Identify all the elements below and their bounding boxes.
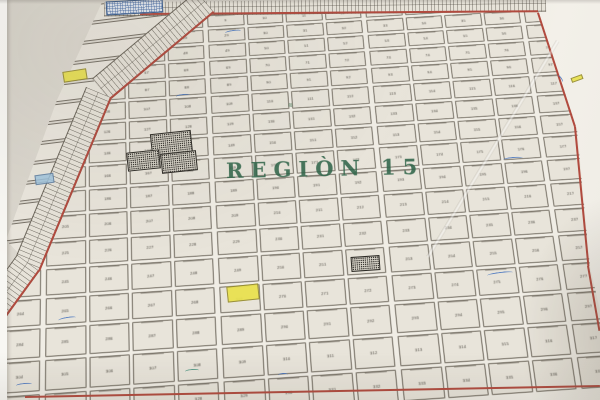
block-number: 206 [104, 221, 112, 226]
city-block: 267 [132, 290, 173, 320]
block-number: 58 [581, 26, 586, 30]
street-name-smudge [9, 330, 31, 332]
block-number: 130 [268, 119, 275, 124]
block-number: 87 [144, 88, 149, 93]
street-name-smudge [55, 269, 76, 271]
street-name-smudge [221, 136, 241, 138]
street-name-smudge [186, 350, 208, 352]
city-block: 134 [415, 101, 455, 121]
block-number: 104 [20, 114, 27, 119]
street-name-smudge [469, 142, 489, 144]
city-block: 91 [290, 71, 328, 89]
block-number: 228 [189, 242, 197, 247]
street-name-smudge [308, 199, 329, 201]
block-number: 88 [185, 85, 190, 90]
block-number: 248 [190, 270, 198, 275]
city-block: 71 [288, 54, 326, 71]
block-number: 109 [226, 101, 233, 106]
street-name-smudge [226, 230, 247, 232]
block-number: 113 [389, 91, 396, 96]
street-name-smudge [300, 91, 320, 93]
street-name-smudge [277, 377, 299, 379]
city-block: 166 [88, 164, 127, 187]
street-name-smudge [545, 95, 565, 97]
street-name-smudge [219, 77, 239, 79]
city-block: 124 [4, 127, 42, 148]
block-number: 84 [22, 96, 27, 101]
stippled-block-2 [126, 149, 161, 171]
street-name-smudge [232, 347, 254, 349]
block-number: 313 [415, 347, 423, 353]
city-block: 4 [7, 25, 44, 39]
street-name-smudge [15, 73, 35, 75]
street-name-smudge [98, 324, 119, 326]
block-number: 268 [191, 299, 199, 304]
block-number: 230 [275, 237, 283, 242]
green-stamp-symbol: ≋ [288, 102, 294, 109]
street-name-smudge [271, 283, 292, 285]
street-name-smudge [447, 301, 468, 303]
street-name-smudge [217, 44, 237, 46]
city-block: 34 [405, 15, 443, 30]
block-number: 286 [105, 336, 113, 342]
street-name-smudge [352, 222, 373, 224]
block-number: 235 [486, 223, 494, 228]
city-block: 230 [259, 226, 300, 253]
block-number: 304 [16, 374, 24, 380]
underlying-sheet-edge [0, 0, 7, 400]
block-number: 188 [187, 191, 195, 196]
block-number: 32 [342, 26, 347, 30]
block-number: 309 [239, 359, 247, 365]
street-name-smudge [416, 32, 435, 34]
street-name-smudge [478, 214, 499, 216]
city-block: 135 [455, 98, 495, 118]
city-block: 38 [562, 6, 600, 21]
street-name-smudge [345, 149, 365, 151]
street-name-smudge [314, 280, 335, 282]
block-number: 70 [265, 63, 270, 67]
block-number: 265 [62, 308, 70, 314]
block-number: 131 [308, 116, 316, 121]
block-number: 144 [20, 156, 27, 161]
street-name-smudge [15, 41, 35, 43]
city-block: 9 [207, 13, 244, 27]
street-name-smudge [187, 383, 209, 385]
street-name-smudge [582, 73, 600, 75]
street-name-smudge [98, 239, 119, 241]
block-number: 71 [305, 60, 310, 64]
block-number: 149 [228, 142, 235, 147]
street-name-smudge [137, 101, 157, 103]
city-block: 113 [373, 84, 412, 103]
street-name-smudge [573, 22, 592, 24]
street-name-smudge [401, 274, 422, 276]
street-name-smudge [496, 43, 516, 45]
block-number: 213 [400, 202, 408, 207]
street-name-smudge [225, 205, 246, 207]
block-number: 78 [584, 43, 589, 47]
block-number: 126 [103, 129, 110, 134]
city-block: 53 [368, 33, 406, 49]
city-block: 76 [487, 42, 526, 59]
street-name-smudge [14, 90, 34, 92]
block-number: 98 [587, 60, 592, 64]
city-block: 138 [577, 91, 600, 111]
block-number: 207 [146, 219, 154, 224]
street-name-smudge [466, 120, 486, 122]
street-name-smudge [571, 7, 590, 9]
street-name-smudge [576, 38, 596, 40]
street-name-smudge [454, 365, 476, 367]
block-number: 245 [62, 278, 70, 283]
block-number: 275 [493, 279, 501, 284]
block-number: 154 [433, 129, 441, 134]
city-block: 33 [366, 18, 404, 33]
block-number: 255 [490, 250, 498, 255]
city-block: 226 [89, 237, 129, 264]
stippled-block-4 [351, 255, 381, 272]
block-number: 310 [283, 356, 291, 362]
city-block: 32 [325, 20, 363, 35]
street-name-smudge [312, 252, 333, 254]
city-block: 24 [7, 40, 44, 55]
block-number: 157 [556, 122, 564, 127]
street-name-smudge [230, 316, 251, 318]
city-block: 130 [252, 111, 291, 131]
street-name-smudge [143, 386, 165, 389]
block-number: 264 [17, 311, 25, 317]
city-block: 228 [173, 232, 213, 259]
street-name-smudge [343, 128, 363, 130]
city-block: 56 [485, 26, 523, 42]
street-name-smudge [386, 125, 406, 127]
street-name-smudge [178, 118, 198, 120]
city-block: 210 [257, 200, 297, 225]
block-number: 250 [277, 264, 285, 269]
street-name-smudge [295, 24, 314, 26]
block-number: 112 [347, 94, 354, 99]
street-name-smudge [316, 310, 337, 312]
city-block: 333 [401, 366, 445, 400]
street-name-smudge [266, 202, 287, 204]
city-block: 108 [169, 97, 207, 116]
block-number: 138 [593, 98, 600, 103]
city-block: 146 [88, 142, 126, 164]
city-block: 158 [580, 111, 600, 132]
block-number: 194 [439, 175, 447, 180]
street-name-smudge [579, 55, 599, 57]
block-number: 133 [391, 111, 399, 116]
city-block: 215 [466, 187, 507, 212]
city-block: 35 [444, 13, 482, 28]
city-block: 307 [133, 351, 175, 384]
block-number: 208 [188, 216, 196, 221]
block-number: 116 [508, 84, 515, 89]
city-block: 314 [441, 331, 485, 364]
street-name-smudge [216, 15, 235, 17]
block-number: 293 [412, 315, 420, 321]
street-name-smudge [137, 82, 157, 84]
block-number: 209 [232, 213, 240, 218]
block-number: 191 [313, 183, 321, 188]
block-number: 295 [497, 309, 505, 315]
street-name-smudge [440, 243, 461, 245]
street-name-smudge [259, 75, 279, 77]
street-name-smudge [378, 50, 398, 52]
block-number: 229 [233, 239, 241, 244]
city-block: 206 [88, 211, 127, 237]
city-block: 87 [128, 81, 166, 99]
city-block: 74 [409, 46, 447, 63]
street-name-smudge [297, 55, 317, 57]
city-block: 245 [46, 267, 86, 295]
block-number: 75 [465, 50, 470, 54]
city-block: 150 [253, 132, 292, 154]
city-block: 92 [329, 69, 367, 87]
street-name-smudge [98, 213, 119, 215]
block-number: 210 [273, 210, 281, 215]
block-number: 107 [144, 107, 151, 112]
block-number: 270 [279, 293, 287, 298]
block-number: 91 [306, 78, 311, 83]
street-name-smudge [556, 159, 576, 161]
block-number: 274 [451, 282, 459, 287]
city-block: 233 [386, 218, 427, 245]
street-name-smudge [262, 133, 282, 135]
block-number: 34 [422, 21, 427, 25]
city-block: 68 [168, 61, 206, 78]
city-block: 289 [221, 314, 263, 345]
block-number: 291 [324, 321, 332, 327]
street-name-smudge [426, 123, 446, 125]
street-name-smudge [57, 54, 77, 56]
street-name-smudge [13, 171, 33, 173]
street-name-smudge [382, 85, 402, 87]
city-block: 231 [301, 223, 342, 250]
block-number: 93 [388, 73, 393, 78]
block-number: 92 [346, 75, 351, 80]
city-block: 78 [567, 37, 600, 54]
city-block: 227 [131, 234, 171, 261]
city-block: 132 [333, 106, 372, 126]
city-block: 329 [223, 379, 266, 400]
street-name-smudge [592, 134, 600, 136]
block-number: 90 [266, 80, 271, 85]
city-block: 174 [420, 143, 460, 166]
block-number: 114 [429, 89, 436, 94]
street-name-smudge [549, 115, 569, 117]
street-name-smudge [365, 371, 387, 373]
block-number: 52 [343, 41, 348, 45]
street-name-smudge [303, 130, 323, 132]
block-number: 197 [563, 167, 571, 172]
block-number: 24 [23, 45, 28, 49]
block-number: 56 [502, 31, 507, 35]
street-name-smudge [260, 93, 280, 95]
street-name-smudge [218, 60, 238, 62]
street-name-smudge [97, 165, 117, 167]
city-block: 131 [292, 109, 331, 129]
block-number: 246 [105, 276, 113, 281]
block-number: 164 [19, 178, 26, 183]
city-block: 331 [311, 373, 354, 400]
block-number: 64 [22, 78, 27, 83]
block-number: 214 [441, 199, 449, 204]
city-block: 25 [48, 37, 85, 52]
street-name-smudge [443, 271, 464, 273]
street-name-smudge [349, 196, 370, 198]
city-block: 114 [413, 82, 452, 101]
city-block: 133 [375, 103, 414, 123]
street-name-smudge [296, 39, 316, 41]
city-block: 266 [89, 293, 129, 323]
block-number: 288 [192, 330, 200, 336]
block-number: 315 [502, 341, 510, 347]
block-number: 48 [183, 51, 188, 55]
street-name-smudge [489, 298, 510, 300]
block-number: 132 [348, 114, 356, 119]
city-block: 294 [437, 299, 480, 330]
block-number: 334 [462, 378, 470, 384]
block-number: 285 [62, 339, 70, 345]
street-name-smudge [275, 344, 297, 346]
block-number: 167 [145, 170, 152, 175]
street-name-smudge [56, 241, 77, 243]
street-name-smudge [273, 313, 294, 315]
block-number: 227 [147, 245, 155, 250]
city-block: 198 [587, 155, 600, 179]
block-number: 44 [23, 61, 28, 65]
street-name-smudge [552, 136, 572, 138]
city-block: 249 [218, 256, 259, 284]
block-number: 311 [326, 353, 334, 359]
street-name-smudge [485, 268, 506, 270]
city-block: 30 [247, 25, 284, 40]
block-number: 211 [315, 208, 322, 213]
street-name-smudge [453, 14, 472, 16]
city-block: 154 [417, 121, 457, 142]
block-number: 31 [302, 28, 307, 32]
city-block: 178 [583, 132, 600, 154]
street-name-smudge [340, 88, 360, 90]
street-name-smudge [318, 341, 340, 343]
block-number: 174 [436, 151, 444, 156]
stippled-block-3 [160, 150, 198, 174]
city-block: 51 [287, 38, 325, 54]
city-block: 311 [309, 340, 352, 373]
block-number: 272 [364, 287, 372, 292]
block-number: 38 [579, 11, 584, 15]
block-number: 4 [24, 30, 26, 34]
block-number: 166 [104, 173, 111, 178]
block-number: 129 [227, 121, 234, 126]
block-number: 45 [64, 58, 69, 62]
city-block: 287 [132, 320, 173, 351]
street-name-smudge [98, 294, 119, 296]
city-block: 117 [534, 74, 574, 93]
street-name-smudge [9, 362, 31, 364]
city-block: 54 [407, 30, 445, 46]
block-number: 333 [419, 381, 427, 387]
block-number: 175 [476, 149, 484, 154]
street-name-smudge [384, 105, 404, 107]
block-number: 9 [224, 18, 227, 22]
street-name-smudge [270, 254, 291, 256]
city-block: 69 [209, 59, 247, 76]
block-number: 33 [382, 23, 387, 27]
street-name-smudge [16, 27, 36, 29]
city-block: 188 [171, 182, 210, 206]
block-number: 267 [148, 302, 156, 307]
city-block: 274 [434, 270, 477, 299]
block-number: 273 [409, 284, 417, 289]
city-block: 208 [172, 206, 212, 231]
street-name-smudge [57, 39, 77, 41]
city-block: 330 [267, 376, 310, 400]
city-block: 292 [350, 305, 393, 336]
city-block: 104 [5, 107, 43, 126]
street-name-smudge [359, 307, 380, 309]
street-name-smudge [492, 12, 511, 14]
city-block: 50 [248, 40, 286, 56]
street-name-smudge [398, 246, 419, 248]
street-name-smudge [97, 188, 118, 190]
street-name-smudge [98, 266, 119, 268]
block-number: 192 [354, 180, 362, 185]
street-name-smudge [268, 227, 289, 229]
street-name-smudge [513, 162, 533, 164]
block-number: 153 [393, 132, 401, 137]
street-name-smudge [138, 120, 158, 122]
street-name-smudge [258, 58, 278, 60]
block-number: 54 [423, 36, 428, 40]
block-number: 135 [471, 106, 479, 111]
city-block: 72 [328, 51, 366, 68]
block-number: 69 [226, 65, 231, 69]
city-block: 291 [307, 308, 349, 339]
street-name-smudge [141, 291, 162, 293]
block-number: 196 [520, 170, 528, 175]
block-number: 96 [507, 65, 512, 69]
block-number: 124 [20, 134, 27, 139]
street-name-smudge [321, 374, 343, 376]
block-number: 314 [458, 344, 466, 350]
street-name-smudge [257, 42, 277, 44]
street-name-smudge [181, 207, 202, 209]
street-name-smudge [55, 359, 77, 361]
street-name-smudge [338, 70, 358, 72]
city-block: 187 [130, 184, 169, 208]
block-number: 94 [427, 70, 432, 75]
block-number: 25 [64, 43, 69, 47]
highlight-lot-yellow-main [226, 283, 259, 302]
block-number: 328 [194, 396, 202, 400]
city-block: 84 [5, 89, 43, 107]
city-block: 109 [211, 94, 249, 113]
street-name-smudge [362, 338, 384, 340]
block-number: 108 [184, 104, 191, 109]
street-name-smudge [139, 210, 160, 212]
street-name-smudge [177, 80, 197, 82]
city-block: 49 [208, 43, 246, 59]
block-number: 231 [317, 234, 325, 239]
street-name-smudge [140, 236, 161, 238]
block-number: 266 [105, 305, 113, 310]
block-number: 76 [504, 48, 509, 52]
block-number: 233 [403, 228, 411, 233]
city-block: 255 [473, 239, 515, 267]
